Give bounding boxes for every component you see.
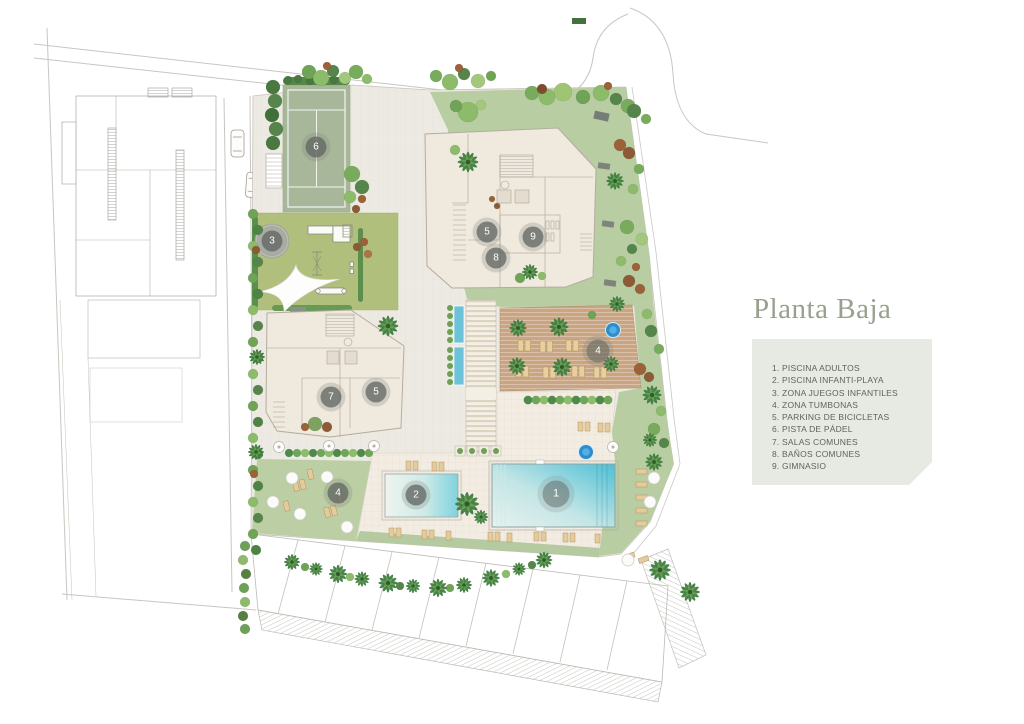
- site-plan-page: 6 3 5 9 8 7 5 4 4 2 1 Planta Baja 1. PIS…: [0, 0, 1024, 724]
- side-panel: Planta Baja 1. PISCINA ADULTOS 2. PISCIN…: [752, 293, 942, 485]
- legend-item-4: 4. ZONA TUMBONAS: [772, 399, 924, 411]
- parking-area: [238, 534, 706, 702]
- parking-bushes: [238, 541, 251, 634]
- padel-court: [283, 75, 350, 212]
- legend-item-7: 7. SALAS COMUNES: [772, 436, 924, 448]
- legend-item-6: 6. PISTA DE PÁDEL: [772, 423, 924, 435]
- pool-adults: [492, 464, 615, 527]
- stair-crossing: [266, 154, 282, 188]
- legend-item-2: 2. PISCINA INFANTI-PLAYA: [772, 374, 924, 386]
- legend-item-5: 5. PARKING DE BICICLETAS: [772, 411, 924, 423]
- legend-item-3: 3. ZONA JUEGOS INFANTILES: [772, 387, 924, 399]
- pool-kids-beach: [385, 474, 458, 517]
- water-cascade: [454, 306, 464, 343]
- deck-tumbonas: [500, 305, 641, 391]
- legend-item-8: 8. BAÑOS COMUNES: [772, 448, 924, 460]
- legend-item-1: 1. PISCINA ADULTOS: [772, 362, 924, 374]
- legend-box: 1. PISCINA ADULTOS 2. PISCINA INFANTI-PL…: [752, 339, 932, 485]
- context-building: [60, 88, 216, 600]
- playground: [252, 213, 398, 312]
- legend-item-9: 9. GIMNASIO: [772, 460, 924, 472]
- plan-title: Planta Baja: [753, 293, 942, 326]
